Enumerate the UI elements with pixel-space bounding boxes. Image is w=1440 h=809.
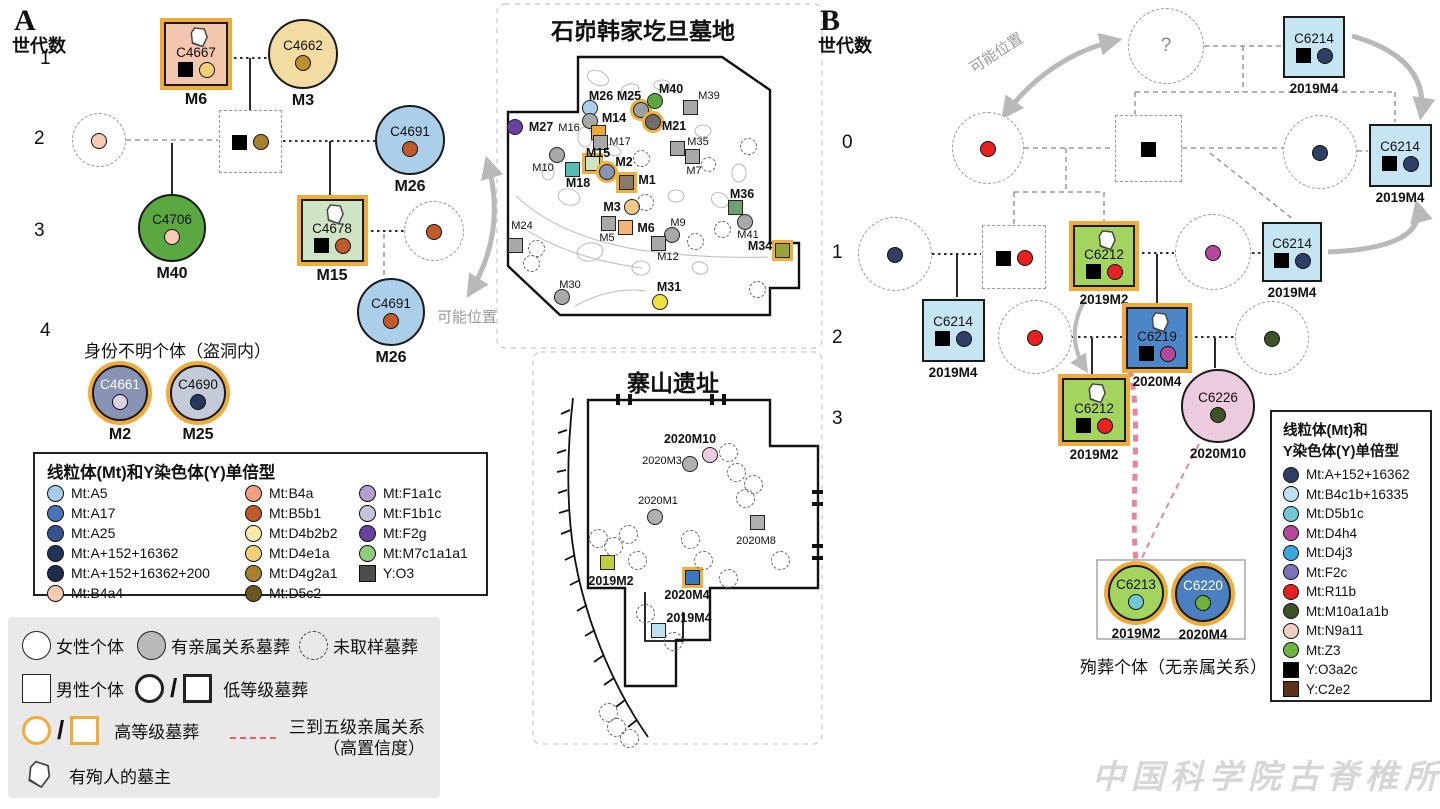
pedigree-node-c4706-m40: C4706	[138, 194, 206, 262]
legend-item: Mt:A+152+16362	[1283, 465, 1430, 485]
pedigree-node-unsampled	[72, 113, 126, 167]
generation-label-a: 2	[34, 128, 45, 150]
legend-item: Mt:A5	[47, 483, 245, 503]
legend-item-label: Mt:M10a1a1b	[1306, 604, 1389, 619]
map-marker-label: 2019M2	[588, 574, 633, 588]
mt-haplotype-dot	[190, 394, 206, 410]
map-marker-label: M25	[617, 89, 641, 103]
map-marker-label: 2020M8	[736, 535, 776, 547]
tomb-label: 2019M4	[1268, 285, 1317, 300]
legend-item: Y:O3a2c	[1283, 660, 1430, 680]
individual-id: C6220	[1183, 578, 1223, 593]
mt-haplotype-dot	[383, 313, 399, 329]
map-marker-m5	[601, 216, 616, 231]
legend-item: Mt:F1a1c	[359, 483, 484, 503]
mt-haplotype-dot	[1264, 331, 1280, 347]
legend-item: Mt:A17	[47, 503, 245, 523]
y-haplotype-square	[1139, 346, 1154, 361]
haplotype-dot-row	[980, 141, 996, 157]
map-marker-m34	[775, 243, 790, 258]
y-haplotype-swatch	[1283, 662, 1299, 678]
individual-id: C6226	[1198, 390, 1238, 405]
y-haplotype-swatch	[359, 565, 376, 582]
legend-item: Mt:F1b1c	[359, 503, 484, 523]
pedigree-node-unsampled: ?	[1128, 8, 1204, 84]
individual-id: C4690	[178, 377, 218, 392]
legend-item: Mt:M10a1a1b	[1283, 602, 1430, 622]
legend-b-title-2: Y染色体(Y)单倍型	[1283, 440, 1430, 461]
map-b-title: 寨山遗址	[627, 364, 719, 398]
map-marker-label: M12	[657, 251, 678, 263]
mt-haplotype-dot	[295, 55, 311, 71]
mt-haplotype-swatch	[245, 505, 262, 522]
tomb-label: 2019M2	[1080, 292, 1129, 307]
mt-haplotype-dot	[1160, 346, 1176, 362]
map-marker-m18	[565, 162, 580, 177]
legend-item: Y:O3	[359, 563, 484, 583]
map-marker-label: 2020M1	[638, 495, 678, 507]
tomb-label: 2019M4	[1290, 81, 1339, 96]
individual-id: C6214	[1380, 139, 1420, 154]
haplotype-dot-row	[91, 133, 107, 149]
tomb-label: M3	[292, 92, 314, 110]
legend-item-label: Mt:A+152+16362	[1306, 467, 1410, 482]
legend-item-label: Mt:N9a11	[1306, 623, 1364, 638]
mt-haplotype-dot	[1295, 253, 1311, 269]
legend-item: Mt:R11b	[1283, 582, 1430, 602]
y-haplotype-square	[1382, 156, 1397, 171]
tomb-label: 2019M2	[1070, 447, 1119, 462]
map-marker-unsampled	[727, 463, 746, 482]
map-marker-label: M39	[698, 90, 719, 102]
legend-item: Mt:N9a11	[1283, 621, 1430, 641]
individual-id: C6214	[1294, 31, 1334, 46]
tomb-label: M40	[156, 265, 187, 283]
mt-haplotype-dot	[980, 141, 996, 157]
legend-item: Mt:Z3	[1283, 641, 1430, 661]
coffin-occupant-icon	[1083, 379, 1113, 409]
mt-haplotype-dot	[956, 331, 972, 347]
haplotype-legend-a: 线粒体(Mt)和Y染色体(Y)单倍型 Mt:A5Mt:A17Mt:A25Mt:A…	[33, 452, 488, 596]
map-marker-unsampled	[681, 530, 700, 549]
haplotype-dot-row	[112, 394, 128, 410]
coffin-occupant-icon	[1146, 308, 1176, 338]
map-marker-label: 2020M4	[664, 588, 709, 602]
male-label: 男性个体	[56, 676, 124, 701]
map-marker-unsampled	[637, 194, 654, 211]
legend-item-label: Mt:D4j3	[1306, 545, 1353, 560]
mt-haplotype-swatch	[1283, 467, 1299, 483]
map-marker-unsampled	[628, 551, 647, 570]
haplotype-dot-row	[295, 55, 311, 71]
pedigree-node-unsampled	[1283, 115, 1357, 189]
mt-haplotype-swatch	[47, 585, 64, 602]
map-marker-label: M1	[638, 173, 655, 187]
pedigree-node-c4691-m26: C4691	[357, 278, 425, 346]
legend-item-label: Mt:D5b1c	[1306, 506, 1364, 521]
mt-haplotype-swatch	[245, 545, 262, 562]
legend-item-label: Mt:F1a1c	[383, 485, 441, 501]
map-marker-label: M30	[559, 279, 580, 291]
legend-a-column: Mt:F1a1cMt:F1b1cMt:F2gMt:M7c1a1a1Y:O3	[359, 483, 484, 603]
pedigree-node-c6214-2019m4: C6214	[1262, 222, 1322, 282]
mt-haplotype-dot	[1128, 594, 1144, 610]
haplotype-dot-row	[232, 134, 269, 150]
pedigree-node-unsampled	[952, 112, 1024, 184]
haplotype-dot-row	[1076, 418, 1113, 434]
mt-haplotype-swatch	[47, 545, 64, 562]
pedigree-node-unsampled	[1175, 214, 1251, 290]
haplotype-dot-row	[1027, 330, 1043, 346]
high-grade-label: 高等级墓葬	[114, 718, 199, 743]
haplotype-dot-row	[1274, 253, 1311, 269]
mt-haplotype-dot	[1403, 156, 1419, 172]
haplotype-dot-row	[1205, 245, 1221, 261]
map-marker-unsampled	[719, 569, 738, 588]
mt-haplotype-swatch	[1283, 506, 1299, 522]
mt-haplotype-dot	[199, 62, 215, 78]
map-marker-label: M5	[599, 232, 614, 244]
tomb-label: M25	[182, 426, 213, 444]
haplotype-dot-row	[935, 331, 972, 347]
map-marker-m30	[554, 289, 570, 305]
map-marker-unsampled	[633, 150, 650, 167]
legend-item-label: Mt:A+152+16362	[71, 545, 178, 561]
legend-item-label: Mt:D5c2	[269, 585, 321, 601]
generation-label-a: 4	[40, 320, 51, 342]
y-haplotype-swatch	[1283, 681, 1299, 697]
symbol-legend: 女性个体 有亲属关系墓葬 未取样墓葬 男性个体 / 低等级墓葬 / 高等级墓葬 …	[8, 617, 440, 798]
legend-item-label: Mt:Z3	[1306, 643, 1341, 658]
individual-id: C4662	[283, 38, 323, 53]
legend-item-label: Mt:B4a4	[71, 585, 123, 601]
related-burial-label: 有亲属关系墓葬	[171, 633, 290, 658]
map-marker-m27	[507, 119, 523, 135]
mt-haplotype-dot	[1317, 48, 1333, 64]
map-marker-unsampled	[736, 489, 755, 508]
kinship-line-thin	[1141, 444, 1199, 560]
map-marker-unsampled	[694, 551, 713, 570]
legend-item-label: Mt:B5b1	[269, 505, 321, 521]
legend-a-column: Mt:A5Mt:A17Mt:A25Mt:A+152+16362Mt:A+152+…	[47, 483, 245, 603]
y-haplotype-square	[935, 331, 950, 346]
legend-b-title-1: 线粒体(Mt)和	[1283, 419, 1430, 440]
mt-haplotype-dot	[112, 394, 128, 410]
map-marker-label: M6	[637, 221, 654, 235]
legend-item-label: Mt:A+152+16362+200	[71, 565, 210, 581]
high-grade-square-icon	[70, 716, 99, 745]
mt-haplotype-dot	[1017, 250, 1033, 266]
mt-haplotype-swatch	[1283, 564, 1299, 580]
legend-item-label: Mt:B4a	[269, 485, 313, 501]
haplotype-dot-row	[426, 224, 442, 240]
mt-haplotype-swatch	[359, 485, 376, 502]
tomb-label: 2019M2	[1112, 626, 1161, 641]
generation-label-b: 2	[832, 327, 843, 349]
map-marker-label: M34	[748, 239, 772, 253]
mt-haplotype-dot	[887, 247, 903, 263]
map-marker-unsampled	[740, 138, 757, 155]
legend-item-label: Mt:A17	[71, 505, 115, 521]
map-marker-unsampled	[719, 443, 738, 462]
coffin-occupant-icon	[1093, 226, 1123, 256]
map-marker-label: M16	[558, 122, 579, 134]
y-haplotype-square	[1086, 264, 1101, 279]
legend-item-label: Mt:F1b1c	[383, 505, 441, 521]
map-marker-label: M14	[602, 111, 626, 125]
map-a-title: 石峁韩家圪旦墓地	[551, 12, 735, 46]
slash-separator: /	[57, 715, 64, 746]
legend-item-label: Mt:A25	[71, 525, 115, 541]
individual-id: C4706	[152, 212, 192, 227]
legend-a-column: Mt:B4aMt:B5b1Mt:D4b2b2Mt:D4e1aMt:D4g2a1M…	[245, 483, 359, 603]
legend-item-label: Mt:D4g2a1	[269, 565, 337, 581]
mt-haplotype-dot	[335, 238, 351, 254]
y-haplotype-square	[178, 62, 193, 77]
map-marker-label: M9	[670, 217, 685, 229]
map-marker-m10	[549, 147, 565, 163]
map-marker-label: M27	[529, 120, 553, 134]
mt-haplotype-dot	[1027, 330, 1043, 346]
mt-haplotype-dot	[1195, 595, 1211, 611]
mt-haplotype-swatch	[1283, 623, 1299, 639]
kinship-label: 三到五级亲属关系	[289, 718, 425, 737]
mt-haplotype-swatch	[47, 565, 64, 582]
pedigree-node-unsampled	[1235, 301, 1309, 375]
map-marker-label: M40	[659, 82, 683, 96]
individual-id: C6214	[933, 314, 973, 329]
legend-a-title: 线粒体(Mt)和Y染色体(Y)单倍型	[47, 459, 486, 483]
map-marker-m39	[683, 100, 698, 115]
jar-owner-label: 有殉人的墓主	[69, 763, 171, 788]
high-grade-circle-icon	[22, 716, 51, 745]
legend-item-label: Y:C2e2	[1306, 682, 1350, 697]
y-haplotype-square	[1274, 253, 1289, 268]
legend-item: Mt:M7c1a1a1	[359, 543, 484, 563]
map-marker-unsampled	[619, 525, 638, 544]
haplotype-dot-row	[314, 238, 351, 254]
pedigree-node-c6214-2019m4: C6214	[1369, 124, 1432, 187]
haplotype-dot-row	[1086, 264, 1123, 280]
related-burial-icon	[137, 631, 166, 660]
individual-id: C6213	[1116, 577, 1156, 592]
watermark: 中国科学院古脊椎所	[1092, 750, 1440, 798]
map-marker-m7	[701, 157, 716, 172]
legend-item: Mt:D4j3	[1283, 543, 1430, 563]
slash-separator: /	[170, 673, 177, 704]
pedigree-node-unsampled	[404, 201, 464, 261]
mt-haplotype-swatch	[1283, 486, 1299, 502]
individual-id: C6214	[1272, 236, 1312, 251]
kinship-confidence-label: （高置信度）	[289, 739, 425, 758]
legend-item: Mt:D4g2a1	[245, 563, 359, 583]
y-haplotype-square	[232, 135, 247, 150]
map-marker-unsampled	[771, 551, 790, 570]
pedigree-node-c4691-m26: C4691	[375, 105, 445, 175]
haplotype-dot-row	[178, 62, 215, 78]
legend-item: Mt:D4h4	[1283, 524, 1430, 544]
tomb-label: M6	[185, 91, 207, 109]
map-marker-2020m4	[685, 570, 700, 585]
pedigree-node-c6220-2020m4: C6220	[1175, 566, 1231, 622]
map-marker-2020m10	[702, 447, 718, 463]
haplotype-dot-row	[1382, 156, 1419, 172]
y-haplotype-square	[1076, 418, 1091, 433]
mt-haplotype-swatch	[245, 525, 262, 542]
haplotype-dot-row	[1128, 594, 1144, 610]
map-marker-label: M24	[511, 220, 532, 232]
legend-item-label: Mt:B4c1b+16335	[1306, 487, 1408, 502]
map-marker	[685, 149, 700, 164]
map-marker-m41	[737, 214, 753, 230]
map-marker-2020m3	[682, 456, 698, 472]
panel-a-axis-label: 世代数	[12, 32, 66, 58]
kinship-dashed-line-icon	[230, 737, 276, 739]
mt-haplotype-swatch	[359, 505, 376, 522]
pedigree-node-c4678-m15: C4678	[301, 199, 364, 262]
mt-haplotype-dot	[253, 134, 269, 150]
legend-item: Mt:A25	[47, 523, 245, 543]
map-marker-unsampled	[620, 729, 639, 748]
map-marker-label: M26	[589, 89, 613, 103]
legend-item-label: Y:O3	[383, 565, 414, 581]
tomb-label: M15	[316, 267, 347, 285]
legend-item-label: Mt:F2c	[1306, 565, 1347, 580]
map-marker-label: M36	[730, 187, 754, 201]
sacrifice-caption: 殉葬个体（无亲属关系）	[1080, 653, 1267, 678]
unknown-group-label: 身份不明个体（盗洞内）	[84, 337, 271, 362]
coffin-occupant-icon	[321, 199, 351, 229]
tomb-label: M2	[109, 426, 131, 444]
generation-label-a: 3	[34, 220, 45, 242]
pedigree-node-c4690-m25: C4690	[170, 365, 226, 421]
haplotype-dot-row	[402, 141, 418, 157]
pedigree-node-c4667-m6: C4667	[164, 22, 228, 86]
map-marker-unsampled	[636, 604, 655, 623]
map-marker-unsampled	[664, 632, 683, 651]
map-marker-label: M17	[609, 136, 630, 148]
figure-canvas: A 世代数 B 世代数 石峁韩家圪旦墓地 寨山遗址 身份不明个体（盗洞内） 可能…	[0, 0, 1440, 809]
tomb-label: M26	[394, 178, 425, 196]
map-marker-2020m1	[647, 509, 663, 525]
pedigree-node-unsampled	[858, 217, 932, 291]
y-haplotype-square	[314, 238, 329, 253]
map-marker-m36	[728, 200, 743, 215]
pedigree-node-c6212-2019m2: C6212	[1062, 378, 1126, 442]
map-marker-label: M3	[603, 200, 620, 214]
female-label: 女性个体	[56, 633, 124, 658]
map-marker-2020m8	[750, 515, 765, 530]
low-grade-square-icon	[183, 674, 212, 703]
map-marker-label: 2019M4	[666, 611, 711, 625]
y-haplotype-square	[1296, 48, 1311, 63]
map-marker-unsampled	[749, 281, 766, 298]
map-marker-unsampled	[714, 221, 731, 238]
map-marker-m24	[508, 238, 523, 253]
haplotype-dot-row	[190, 394, 206, 410]
tomb-label: 2020M4	[1179, 627, 1228, 642]
haplotype-dot-row	[1296, 48, 1333, 64]
pedigree-node-unsampled	[982, 225, 1046, 289]
haplotype-legend-b: 线粒体(Mt)和 Y染色体(Y)单倍型 Mt:A+152+16362Mt:B4c…	[1270, 410, 1432, 702]
map-marker-2019m4	[651, 623, 666, 638]
mt-haplotype-dot	[402, 141, 418, 157]
low-grade-label: 低等级墓葬	[223, 676, 308, 701]
map-marker-m2	[599, 164, 615, 180]
individual-id: C4691	[390, 124, 430, 139]
haplotype-dot-row	[383, 313, 399, 329]
individual-id: C4691	[371, 296, 411, 311]
haplotype-dot-row	[1139, 346, 1176, 362]
map-marker-label: M35	[687, 136, 708, 148]
mt-haplotype-dot	[426, 224, 442, 240]
unsampled-burial-icon	[299, 631, 328, 660]
pedigree-node-c6214-2019m4: C6214	[922, 299, 985, 362]
map-marker-unsampled	[687, 233, 704, 250]
pedigree-node-c6219-2020m4: C6219	[1126, 307, 1188, 369]
mt-haplotype-dot	[1097, 418, 1113, 434]
tomb-label: M26	[375, 349, 406, 367]
legend-item: Mt:B4c1b+16335	[1283, 485, 1430, 505]
map-marker-unsampled	[523, 255, 540, 272]
map-marker-label: M21	[662, 119, 686, 133]
kinship-line-thick	[1130, 370, 1136, 560]
tomb-label: 2019M4	[929, 365, 978, 380]
map-marker-label: M2	[615, 155, 632, 169]
coffin-occupant-icon	[24, 759, 56, 791]
mt-haplotype-dot	[1210, 407, 1226, 423]
legend-item-label: Mt:D4e1a	[269, 545, 330, 561]
map-marker-m12	[651, 236, 666, 251]
haplotype-dot-row	[164, 229, 180, 245]
pedigree-node-unsampled	[219, 110, 282, 173]
unsampled-burial-label: 未取样墓葬	[333, 633, 418, 658]
legend-item: Mt:F2c	[1283, 563, 1430, 583]
haplotype-dot-row	[1264, 331, 1280, 347]
legend-item: Mt:A+152+16362	[47, 543, 245, 563]
coffin-occupant-icon	[185, 23, 215, 53]
map-marker-label: M31	[657, 280, 681, 294]
map-marker-m31	[652, 294, 668, 310]
y-haplotype-square	[996, 251, 1011, 266]
mt-haplotype-swatch	[359, 545, 376, 562]
haplotype-dot-row	[1141, 142, 1156, 157]
mt-haplotype-swatch	[245, 565, 262, 582]
mt-haplotype-swatch	[47, 505, 64, 522]
map-marker-m9	[664, 227, 680, 243]
pedigree-node-c4661-m2: C4661	[92, 365, 148, 421]
mt-haplotype-swatch	[1283, 642, 1299, 658]
legend-item-label: Mt:D4h4	[1306, 526, 1357, 541]
legend-item-label: Mt:A5	[71, 485, 108, 501]
mt-haplotype-swatch	[1283, 584, 1299, 600]
map-marker-m35	[670, 141, 685, 156]
legend-item: Mt:F2g	[359, 523, 484, 543]
mt-haplotype-dot	[91, 133, 107, 149]
map-marker-unsampled	[528, 240, 545, 257]
pedigree-node-c6226-2020m10: C6226	[1181, 369, 1255, 443]
male-symbol-icon	[22, 674, 51, 703]
map-marker-label: M18	[566, 176, 590, 190]
generation-label-b: 1	[832, 242, 843, 264]
map-marker-m1	[619, 175, 634, 190]
haplotype-dot-row	[996, 250, 1033, 266]
mt-haplotype-swatch	[245, 585, 262, 602]
haplotype-dot-row	[887, 247, 903, 263]
map-marker-label: M7	[686, 165, 701, 177]
map-marker-2019m2	[600, 555, 615, 570]
y-haplotype-square	[1141, 142, 1156, 157]
